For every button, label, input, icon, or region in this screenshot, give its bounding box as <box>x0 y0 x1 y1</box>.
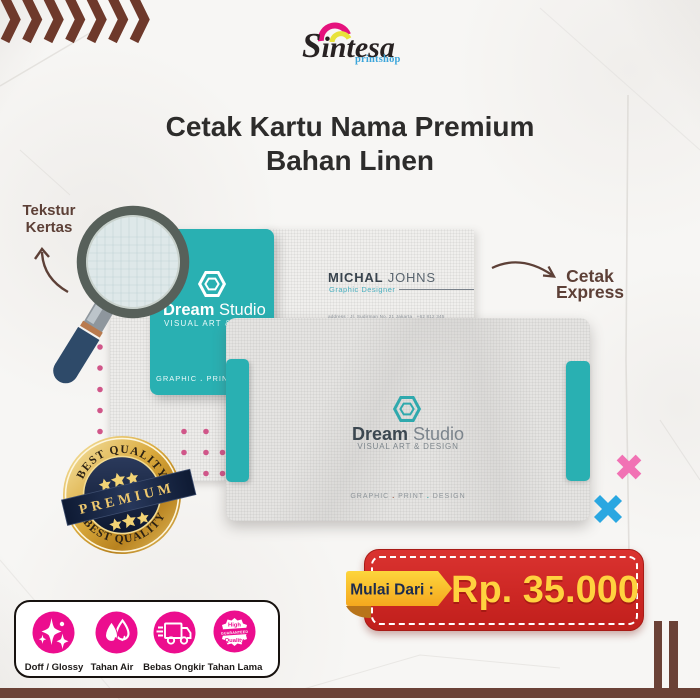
svg-text:Mulai Dari :: Mulai Dari : <box>350 582 434 599</box>
svg-text:High: High <box>228 623 241 629</box>
svg-text:Quality: Quality <box>225 638 245 644</box>
